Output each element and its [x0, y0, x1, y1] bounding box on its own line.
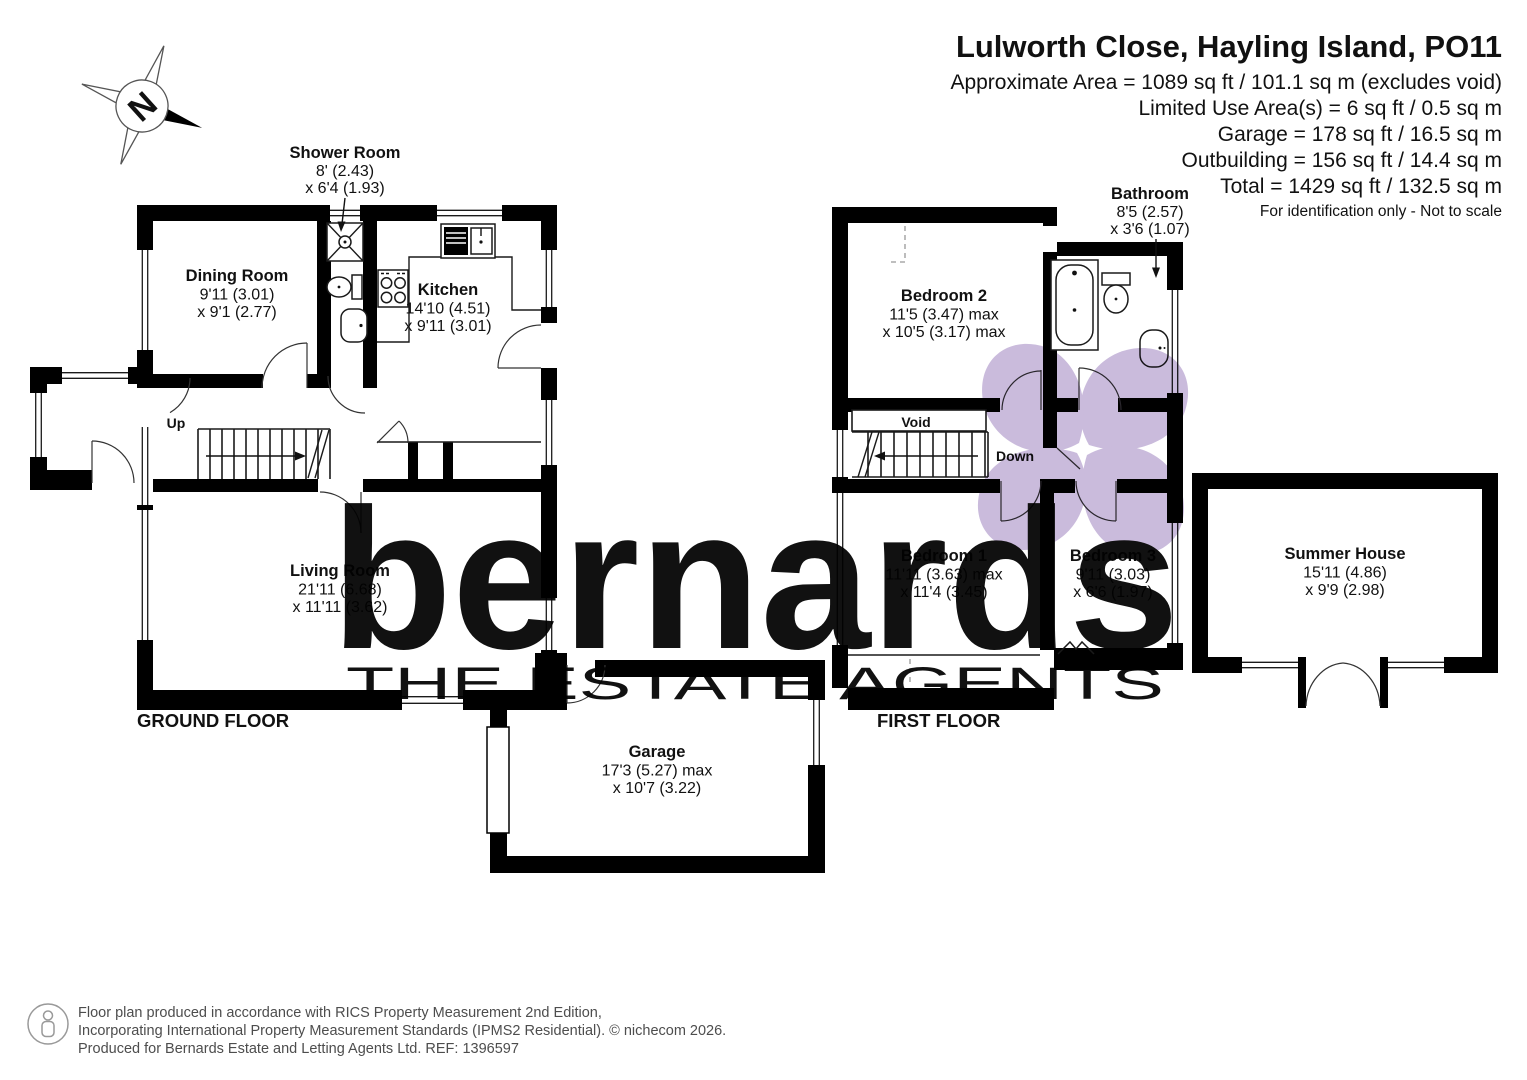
svg-text:Bathroom: Bathroom [1111, 185, 1189, 203]
svg-text:14'10 (4.51): 14'10 (4.51) [406, 301, 491, 318]
svg-text:x 9'9 (2.98): x 9'9 (2.98) [1305, 582, 1385, 599]
ground-floor-label: GROUND FLOOR [137, 710, 289, 731]
bathtub [1051, 260, 1098, 350]
label-garage: Garage 17'3 (5.27) max x 10'7 (3.22) [602, 743, 713, 797]
svg-text:9'11 (3.01): 9'11 (3.01) [200, 287, 275, 304]
svg-text:Bedroom 2: Bedroom 2 [901, 287, 987, 305]
cooker-hob [378, 270, 408, 307]
compass-north-icon: N [61, 24, 224, 186]
page-title: Lulworth Close, Hayling Island, PO11 [956, 29, 1502, 64]
svg-text:11'5 (3.47) max: 11'5 (3.47) max [889, 307, 998, 324]
svg-text:17'3 (5.27) max: 17'3 (5.27) max [602, 763, 713, 780]
up-label: Up [167, 415, 186, 431]
svg-text:8' (2.43): 8' (2.43) [316, 163, 374, 180]
area-line-garage: Garage = 178 sq ft / 16.5 sq m [1218, 123, 1502, 146]
floorplan-page: Lulworth Close, Hayling Island, PO11 App… [0, 0, 1527, 1080]
svg-text:x 9'1 (2.77): x 9'1 (2.77) [197, 304, 277, 321]
label-summer-house: Summer House 15'11 (4.86) x 9'9 (2.98) [1284, 545, 1405, 599]
svg-text:15'11 (4.86): 15'11 (4.86) [1303, 565, 1387, 582]
void-label: Void [901, 414, 930, 430]
svg-text:x 10'5 (3.17) max: x 10'5 (3.17) max [882, 324, 1005, 341]
area-line-total: Total = 1429 sq ft / 132.5 sq m [1220, 175, 1502, 198]
svg-text:x 9'11 (3.01): x 9'11 (3.01) [404, 318, 491, 335]
watermark: bernards THE ESTATE AGENTS [331, 344, 1188, 709]
toilet-ground [327, 275, 362, 299]
toilet-first [1102, 273, 1130, 313]
header: Lulworth Close, Hayling Island, PO11 App… [950, 29, 1502, 220]
svg-text:Summer House: Summer House [1284, 545, 1405, 563]
svg-text:8'5 (2.57): 8'5 (2.57) [1116, 204, 1183, 221]
label-bedroom2: Bedroom 2 11'5 (3.47) max x 10'5 (3.17) … [882, 287, 1005, 341]
footer-line-1: Floor plan produced in accordance with R… [78, 1005, 602, 1021]
footer: Floor plan produced in accordance with R… [28, 1004, 726, 1057]
label-kitchen: Kitchen 14'10 (4.51) x 9'11 (3.01) [404, 281, 491, 335]
svg-text:Kitchen: Kitchen [418, 281, 479, 299]
scale-note: For identification only - Not to scale [1260, 203, 1502, 220]
svg-text:Shower Room: Shower Room [290, 144, 401, 162]
area-line-limited-use: Limited Use Area(s) = 6 sq ft / 0.5 sq m [1138, 97, 1502, 120]
svg-text:x 3'6 (1.07): x 3'6 (1.07) [1110, 221, 1190, 238]
svg-text:Dining Room: Dining Room [186, 267, 289, 285]
first-floor-label: FIRST FLOOR [877, 710, 1000, 731]
kitchen-sink [441, 224, 495, 258]
footer-line-3: Produced for Bernards Estate and Letting… [78, 1041, 519, 1057]
floorplan-canvas: Lulworth Close, Hayling Island, PO11 App… [0, 0, 1527, 1080]
person-badge-icon [28, 1004, 68, 1044]
svg-text:x 10'7 (3.22): x 10'7 (3.22) [613, 780, 701, 797]
basin-ground [341, 309, 367, 342]
area-line-approximate: Approximate Area = 1089 sq ft / 101.1 sq… [950, 71, 1502, 94]
svg-text:x 6'4 (1.93): x 6'4 (1.93) [305, 180, 385, 197]
staircase-up [198, 429, 330, 479]
svg-text:Garage: Garage [629, 743, 686, 761]
garage-door [487, 727, 509, 833]
label-dining-room: Dining Room 9'11 (3.01) x 9'1 (2.77) [186, 267, 289, 321]
watermark-tagline: THE ESTATE AGENTS [346, 658, 1164, 709]
footer-line-2: Incorporating International Property Mea… [78, 1023, 726, 1039]
shower-tray [327, 223, 363, 261]
area-line-outbuilding: Outbuilding = 156 sq ft / 14.4 sq m [1182, 149, 1502, 172]
